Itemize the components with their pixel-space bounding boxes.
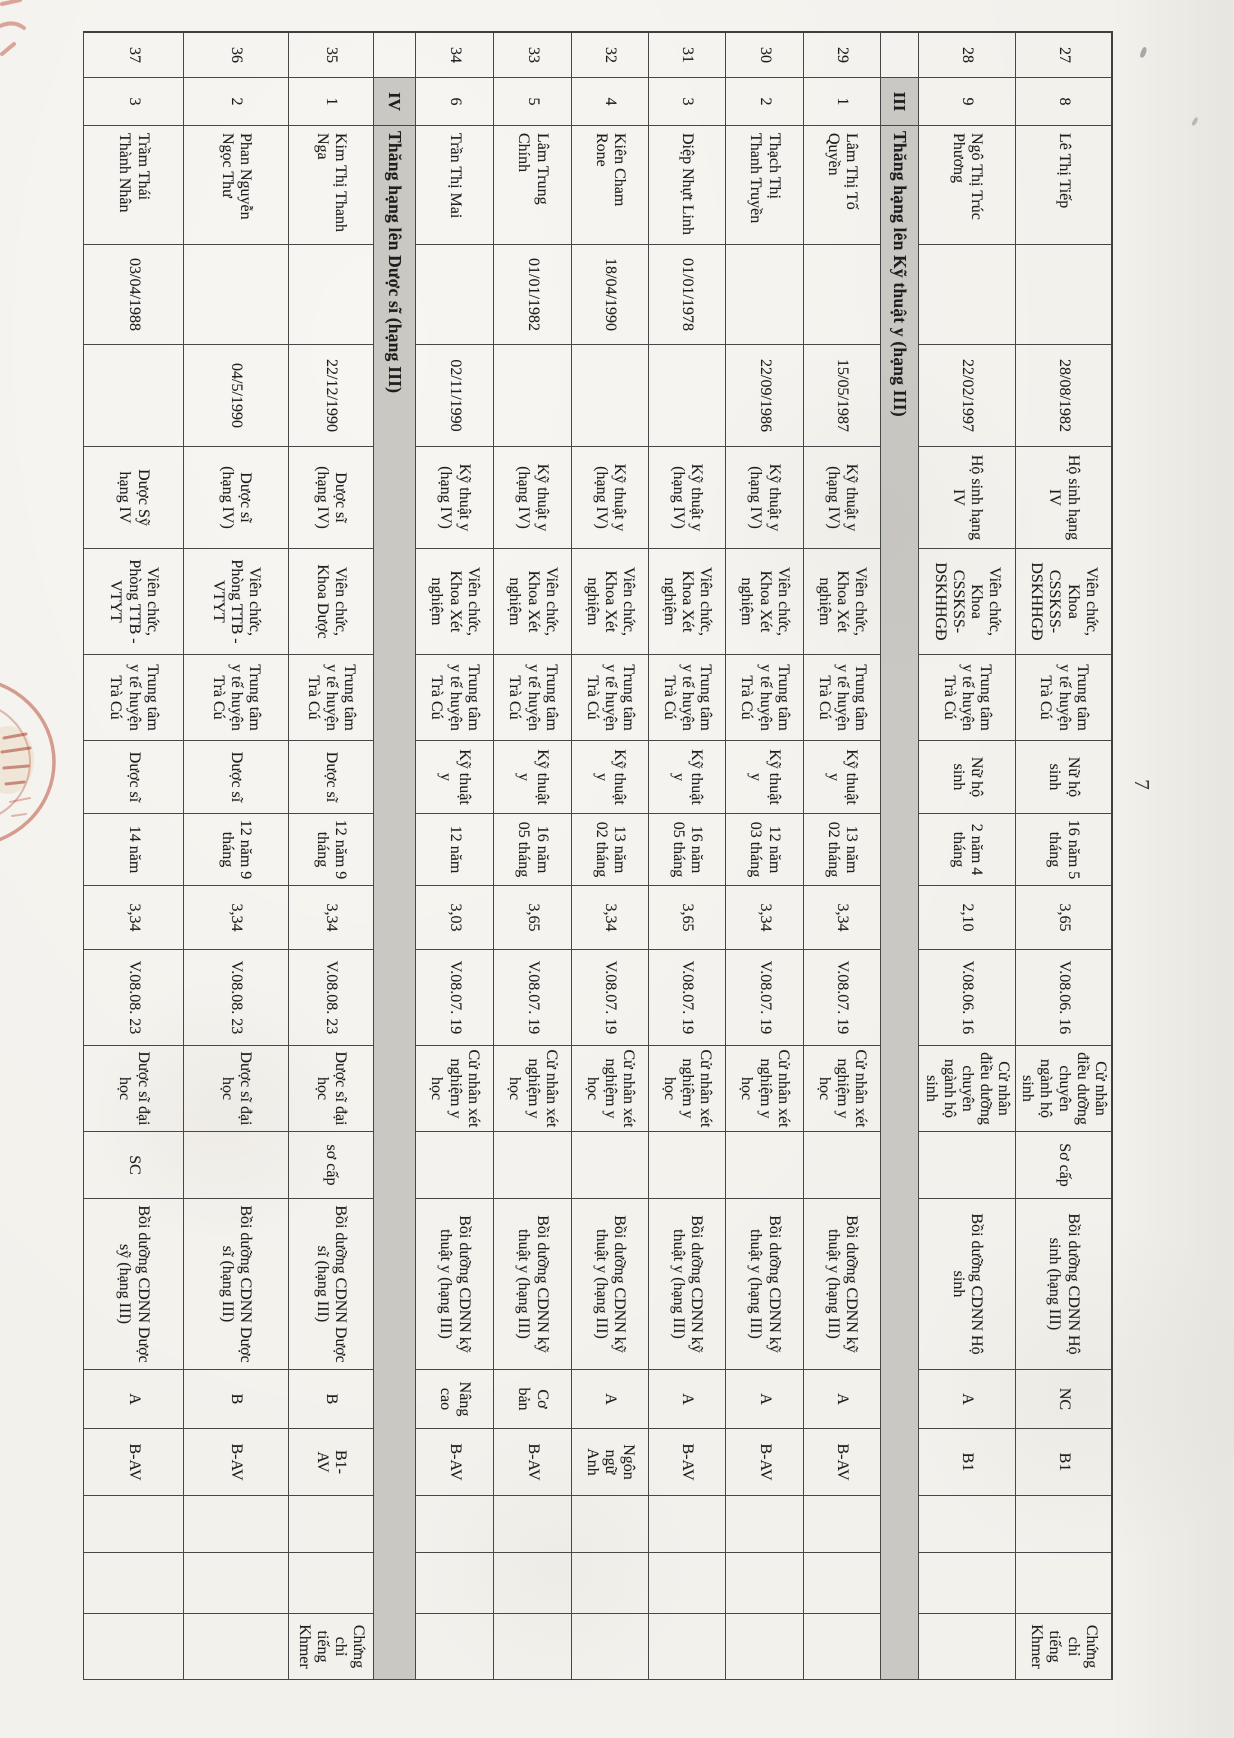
cell-thoi_gian: 12 năm 9 tháng	[288, 814, 373, 886]
cell-tin_hoc: NC	[1015, 1370, 1111, 1429]
cell-ho_ten: Trầm Thái Thành Nhân	[83, 126, 183, 245]
cell-don_vi: Trung tâm y tế huyện Trà Cú	[415, 655, 493, 741]
record-row-36: 362Phan Nguyễn Ngọc Thư04/5/1990Dược sĩ …	[183, 33, 288, 1680]
cell-ho_ten: Lê Thị Tiếp	[1015, 126, 1111, 245]
cell-ngoai_ngu: B-AV	[648, 1429, 725, 1496]
cell-so_tt: 3	[83, 78, 183, 126]
cell-tin_hoc: A	[725, 1370, 803, 1429]
cell-trinh_do_khac	[803, 1132, 880, 1199]
cell-cot_18	[725, 1496, 803, 1553]
cell-cot_18	[493, 1496, 571, 1553]
cell-don_vi: Trung tâm y tế huyện Trà Cú	[803, 655, 880, 741]
cell-cot_18	[571, 1496, 648, 1553]
record-row-35: 351Kim Thị Thanh Nga22/12/1990Dược sĩ (h…	[288, 33, 373, 1680]
record-row-37: 373Trầm Thái Thành Nhân03/04/1988Dược Sỹ…	[83, 33, 183, 1680]
cell-boi_duong_cdnn: Bồi dưỡng CDNN kỹ thuật y (hạng III)	[571, 1199, 648, 1370]
cell-cot_19	[415, 1553, 493, 1614]
cell-cot_18	[918, 1496, 1015, 1553]
scanned-document-sheet: 278Lê Thị Tiếp28/08/1982Hộ sinh hạng IVV…	[0, 0, 1234, 1738]
cell-ngay_sinh_nam	[183, 245, 288, 345]
cell-vi_tri_viec_lam: Viên chức, Khoa Dược	[288, 549, 373, 655]
cell-chuc_danh_hien_giu: Hộ sinh hạng IV	[1015, 447, 1111, 549]
record-row-34: 346Trần Thị Mai02/11/1990Kỹ thuật y (hạn…	[415, 33, 493, 1680]
cell-vi_tri_viec_lam: Viên chức, Khoa Xét nghiệm	[648, 549, 725, 655]
cell-cot_19	[1015, 1553, 1111, 1614]
cell-so_tt: 3	[648, 78, 725, 126]
cell-thoi_gian: 12 năm	[415, 814, 493, 886]
cell-chuc_danh_hien_giu: Kỹ thuật y (hạng IV)	[803, 447, 880, 549]
cell-chuc_danh: Dược sĩ	[183, 741, 288, 814]
cell-ngay_sinh_nam	[803, 245, 880, 345]
cell-ma_so: V.08.06. 16	[918, 950, 1015, 1046]
cell-ngay_sinh_nu: 04/5/1990	[183, 345, 288, 447]
cell-ho_ten: Phan Nguyễn Ngọc Thư	[183, 126, 288, 245]
cell-cot_18	[83, 1496, 183, 1553]
cell-boi_duong_cdnn: Bồi dưỡng CDNN Dược sĩ (hạng III)	[183, 1199, 288, 1370]
cell-boi_duong_cdnn: Bồi dưỡng CDNN Dược sĩ (hạng III)	[288, 1199, 373, 1370]
cell-ngoai_ngu: B-AV	[725, 1429, 803, 1496]
cell-ngoai_ngu: B1- AV	[288, 1429, 373, 1496]
cell-chuc_danh_hien_giu: Kỹ thuật y (hạng IV)	[415, 447, 493, 549]
cell-thoi_gian: 16 năm 05 tháng	[493, 814, 571, 886]
cell-trinh_do_chuyen_mon: Cử nhân điều dưỡng chuyên ngành hộ sinh	[1015, 1046, 1111, 1132]
cell-don_vi: Trung tâm y tế huyện Trà Cú	[1015, 655, 1111, 741]
cell-tieng_dan_toc	[803, 1614, 880, 1680]
cell-tieng_dan_toc	[83, 1614, 183, 1680]
cell-vi_tri_viec_lam: Viên chức, Khoa CSSKSS-DSKHHGĐ	[918, 549, 1015, 655]
cell-cot_19	[648, 1553, 725, 1614]
cell-don_vi: Trung tâm y tế huyện Trà Cú	[571, 655, 648, 741]
cell-trinh_do_khac: sơ cấp	[288, 1132, 373, 1199]
cell-ngoai_ngu: B-AV	[803, 1429, 880, 1496]
cell-ngay_sinh_nu: 15/05/1987	[803, 345, 880, 447]
cell-ma_so: V.08.07. 19	[571, 950, 648, 1046]
cell-ho_ten: Lâm Thị Tố Quyền	[803, 126, 880, 245]
cell-cot_19	[725, 1553, 803, 1614]
section-blank-cell	[373, 33, 415, 78]
cell-trinh_do_chuyen_mon: Cử nhân điều dưỡng chuyên ngành hộ sinh	[918, 1046, 1015, 1132]
cell-ngoai_ngu: B-AV	[415, 1429, 493, 1496]
cell-vi_tri_viec_lam: Viên chức, Khoa Xét nghiệm	[493, 549, 571, 655]
cell-don_vi: Trung tâm y tế huyện Trà Cú	[493, 655, 571, 741]
cell-thoi_gian: 16 năm 05 tháng	[648, 814, 725, 886]
cell-boi_duong_cdnn: Bồi dưỡng CDNN Hộ sinh	[918, 1199, 1015, 1370]
cell-ngay_sinh_nu	[648, 345, 725, 447]
cell-chuc_danh: Dược sĩ	[83, 741, 183, 814]
section-title: Thăng hạng lên Dược sĩ (hạng III)	[373, 126, 415, 1680]
cell-boi_duong_cdnn: Bồi dưỡng CDNN kỹ thuật y (hạng III)	[415, 1199, 493, 1370]
cell-thoi_gian: 16 năm 5 tháng	[1015, 814, 1111, 886]
cell-chuc_danh_hien_giu: Dược Sỹ hạng IV	[83, 447, 183, 549]
cell-tieng_dan_toc	[493, 1614, 571, 1680]
cell-tieng_dan_toc: Chứng chỉ tiếng Khmer	[1015, 1614, 1111, 1680]
cell-thoi_gian: 14 năm	[83, 814, 183, 886]
cell-ngoai_ngu: B-AV	[493, 1429, 571, 1496]
cell-he_so_luong: 3,34	[571, 886, 648, 950]
cell-chuc_danh: Kỹ thuật y	[803, 741, 880, 814]
cell-so_tt: 1	[803, 78, 880, 126]
cell-chuc_danh_hien_giu: Kỹ thuật y (hạng IV)	[493, 447, 571, 549]
cell-ngay_sinh_nam	[725, 245, 803, 345]
cell-tin_hoc: Nâng cao	[415, 1370, 493, 1429]
cell-trinh_do_khac	[415, 1132, 493, 1199]
cell-tin_hoc: A	[918, 1370, 1015, 1429]
cell-so_tt: 8	[1015, 78, 1111, 126]
cell-tin_hoc: B	[288, 1370, 373, 1429]
cell-so_tt: 1	[288, 78, 373, 126]
section-blank-cell	[880, 33, 918, 78]
cell-chuc_danh_hien_giu: Kỹ thuật y (hạng IV)	[648, 447, 725, 549]
cell-cot_19	[571, 1553, 648, 1614]
record-row-28: 289Ngô Thị Trúc Phương22/02/1997Hộ sinh …	[918, 33, 1015, 1680]
cell-ngay_sinh_nu: 28/08/1982	[1015, 345, 1111, 447]
cell-ngay_sinh_nam: 03/04/1988	[83, 245, 183, 345]
cell-don_vi: Trung tâm y tế huyện Trà Cú	[83, 655, 183, 741]
cell-vi_tri_viec_lam: Viên chức, Phòng TTB - VTYT	[83, 549, 183, 655]
section-numeral: III	[880, 78, 918, 126]
cell-tin_hoc: A	[571, 1370, 648, 1429]
cell-trinh_do_khac: Sơ cấp	[1015, 1132, 1111, 1199]
cell-chuc_danh_hien_giu: Kỹ thuật y (hạng IV)	[725, 447, 803, 549]
cell-so_tt: 6	[415, 78, 493, 126]
cell-ma_so: V.08.07. 19	[725, 950, 803, 1046]
cell-thoi_gian: 12 năm 03 tháng	[725, 814, 803, 886]
cell-ngoai_ngu: B1	[918, 1429, 1015, 1496]
cell-ngay_sinh_nam	[415, 245, 493, 345]
cell-ngay_sinh_nam	[1015, 245, 1111, 345]
cell-so_tt: 5	[493, 78, 571, 126]
cell-ngoai_ngu: B-AV	[83, 1429, 183, 1496]
cell-tin_hoc: A	[83, 1370, 183, 1429]
cell-so_tt: 9	[918, 78, 1015, 126]
cell-tieng_dan_toc	[648, 1614, 725, 1680]
cell-trinh_do_chuyen_mon: Cử nhân xét nghiệm y học	[803, 1046, 880, 1132]
cell-ma_so: V.08.08. 23	[183, 950, 288, 1046]
cell-chuc_danh: Nữ hộ sinh	[1015, 741, 1111, 814]
cell-cot_18	[648, 1496, 725, 1553]
cell-tin_hoc: A	[648, 1370, 725, 1429]
cell-trinh_do_chuyen_mon: Cử nhân xét nghiệm y học	[725, 1046, 803, 1132]
cell-ho_ten: Ngô Thị Trúc Phương	[918, 126, 1015, 245]
cell-trinh_do_chuyen_mon: Dược sĩ đại học	[83, 1046, 183, 1132]
cell-chuc_danh: Kỹ thuật y	[725, 741, 803, 814]
section-numeral: IV	[373, 78, 415, 126]
cell-he_so_luong: 3,65	[648, 886, 725, 950]
cell-ngay_sinh_nu: 22/09/1986	[725, 345, 803, 447]
section-title: Thăng hạng lên Kỹ thuật y (hạng III)	[880, 126, 918, 1680]
cell-ma_so: V.08.08. 23	[83, 950, 183, 1046]
cell-stt: 28	[918, 33, 1015, 78]
record-row-29: 291Lâm Thị Tố Quyền15/05/1987Kỹ thuật y …	[803, 33, 880, 1680]
cell-chuc_danh: Dược sĩ	[288, 741, 373, 814]
cell-chuc_danh_hien_giu: Kỹ thuật y (hạng IV)	[571, 447, 648, 549]
personnel-table: 278Lê Thị Tiếp28/08/1982Hộ sinh hạng IVV…	[83, 31, 1113, 1680]
cell-ngay_sinh_nu: 22/02/1997	[918, 345, 1015, 447]
cell-trinh_do_khac: SC	[83, 1132, 183, 1199]
cell-stt: 31	[648, 33, 725, 78]
cell-chuc_danh_hien_giu: Dược sĩ (hạng IV)	[288, 447, 373, 549]
cell-trinh_do_chuyen_mon: Cử nhân xét nghiệm y học	[648, 1046, 725, 1132]
cell-boi_duong_cdnn: Bồi dưỡng CDNN kỹ thuật y (hạng III)	[803, 1199, 880, 1370]
cell-boi_duong_cdnn: Bồi dưỡng CDNN kỹ thuật y (hạng III)	[648, 1199, 725, 1370]
cell-stt: 33	[493, 33, 571, 78]
cell-trinh_do_khac	[918, 1132, 1015, 1199]
cell-boi_duong_cdnn: Bồi dưỡng CDNN Dược sỹ (hạng III)	[83, 1199, 183, 1370]
seal-fragment	[0, 680, 64, 845]
cell-tin_hoc: B	[183, 1370, 288, 1429]
cell-don_vi: Trung tâm y tế huyện Trà Cú	[648, 655, 725, 741]
cell-trinh_do_khac	[725, 1132, 803, 1199]
cell-tieng_dan_toc	[571, 1614, 648, 1680]
cell-he_so_luong: 3,34	[803, 886, 880, 950]
record-row-27: 278Lê Thị Tiếp28/08/1982Hộ sinh hạng IVV…	[1015, 33, 1111, 1680]
cell-stt: 34	[415, 33, 493, 78]
cell-he_so_luong: 3,03	[415, 886, 493, 950]
record-row-33: 335Lâm Trung Chính01/01/1982Kỹ thuật y (…	[493, 33, 571, 1680]
cell-trinh_do_chuyen_mon: Dược sĩ đại học	[288, 1046, 373, 1132]
cell-cot_18	[1015, 1496, 1111, 1553]
cell-stt: 32	[571, 33, 648, 78]
cell-thoi_gian: 2 năm 4 tháng	[918, 814, 1015, 886]
cell-tin_hoc: Cơ bản	[493, 1370, 571, 1429]
cell-chuc_danh: Kỹ thuật y	[415, 741, 493, 814]
cell-cot_18	[288, 1496, 373, 1553]
cell-he_so_luong: 3,34	[725, 886, 803, 950]
cell-ma_so: V.08.08. 23	[288, 950, 373, 1046]
record-row-32: 324Kiên Cham Rone18/04/1990Kỹ thuật y (h…	[571, 33, 648, 1680]
cell-cot_19	[183, 1553, 288, 1614]
cell-ngay_sinh_nam	[288, 245, 373, 345]
scan-speck	[1191, 117, 1199, 127]
cell-ngay_sinh_nam: 01/01/1982	[493, 245, 571, 345]
cell-ho_ten: Kiên Cham Rone	[571, 126, 648, 245]
cell-stt: 35	[288, 33, 373, 78]
cell-chuc_danh: Nữ hộ sinh	[918, 741, 1015, 814]
cell-stt: 27	[1015, 33, 1111, 78]
cell-trinh_do_khac	[648, 1132, 725, 1199]
cell-stt: 36	[183, 33, 288, 78]
cell-boi_duong_cdnn: Bồi dưỡng CDNN Hộ sinh (hạng III)	[1015, 1199, 1111, 1370]
cell-cot_19	[288, 1553, 373, 1614]
cell-chuc_danh: Kỹ thuật y	[571, 741, 648, 814]
record-row-31: 313Diệp Nhựt Linh01/01/1978Kỹ thuật y (h…	[648, 33, 725, 1680]
cell-vi_tri_viec_lam: Viên chức, Phòng TTB - VTYT	[183, 549, 288, 655]
cell-chuc_danh: Kỹ thuật y	[493, 741, 571, 814]
cell-ngay_sinh_nam: 18/04/1990	[571, 245, 648, 345]
cell-ngay_sinh_nu	[83, 345, 183, 447]
cell-ma_so: V.08.07. 19	[415, 950, 493, 1046]
cell-ngay_sinh_nu	[571, 345, 648, 447]
cell-chuc_danh_hien_giu: Dược sĩ (hạng IV)	[183, 447, 288, 549]
red-corner-mark	[0, 0, 44, 72]
cell-tieng_dan_toc	[415, 1614, 493, 1680]
cell-ma_so: V.08.06. 16	[1015, 950, 1111, 1046]
cell-ngoai_ngu: Ngôn ngữ Anh	[571, 1429, 648, 1496]
cell-he_so_luong: 2,10	[918, 886, 1015, 950]
cell-don_vi: Trung tâm y tế huyện Trà Cú	[288, 655, 373, 741]
cell-vi_tri_viec_lam: Viên chức, Khoa Xét nghiệm	[571, 549, 648, 655]
cell-thoi_gian: 12 năm 9 tháng	[183, 814, 288, 886]
cell-ngay_sinh_nu: 02/11/1990	[415, 345, 493, 447]
cell-trinh_do_chuyen_mon: Cử nhân xét nghiệm y học	[415, 1046, 493, 1132]
cell-vi_tri_viec_lam: Viên chức, Khoa Xét nghiệm	[803, 549, 880, 655]
page-number: 7	[1129, 779, 1154, 790]
record-row-30: 302Thạch Thị Thanh Truyền22/09/1986Kỹ th…	[725, 33, 803, 1680]
cell-chuc_danh: Kỹ thuật y	[648, 741, 725, 814]
cell-tieng_dan_toc	[918, 1614, 1015, 1680]
cell-boi_duong_cdnn: Bồi dưỡng CDNN kỹ thuật y (hạng III)	[725, 1199, 803, 1370]
cell-ho_ten: Kim Thị Thanh Nga	[288, 126, 373, 245]
cell-cot_18	[803, 1496, 880, 1553]
cell-ma_so: V.08.07. 19	[493, 950, 571, 1046]
cell-ho_ten: Trần Thị Mai	[415, 126, 493, 245]
cell-tieng_dan_toc	[725, 1614, 803, 1680]
cell-trinh_do_chuyen_mon: Cử nhân xét nghiệm y học	[571, 1046, 648, 1132]
cell-ngoai_ngu: B1	[1015, 1429, 1111, 1496]
section-row-III: IIIThăng hạng lên Kỹ thuật y (hạng III)	[880, 33, 918, 1680]
cell-stt: 37	[83, 33, 183, 78]
section-row-IV: IVThăng hạng lên Dược sĩ (hạng III)	[373, 33, 415, 1680]
cell-ho_ten: Lâm Trung Chính	[493, 126, 571, 245]
cell-cot_18	[183, 1496, 288, 1553]
cell-trinh_do_khac	[493, 1132, 571, 1199]
cell-ngay_sinh_nam	[918, 245, 1015, 345]
cell-ma_so: V.08.07. 19	[648, 950, 725, 1046]
cell-trinh_do_chuyen_mon: Cử nhân xét nghiệm y học	[493, 1046, 571, 1132]
cell-vi_tri_viec_lam: Viên chức, Khoa CSSKSS-DSKHHGĐ	[1015, 549, 1111, 655]
cell-ngay_sinh_nu	[493, 345, 571, 447]
cell-so_tt: 4	[571, 78, 648, 126]
cell-vi_tri_viec_lam: Viên chức, Khoa Xét nghiệm	[415, 549, 493, 655]
cell-cot_18	[415, 1496, 493, 1553]
cell-tin_hoc: A	[803, 1370, 880, 1429]
cell-thoi_gian: 13 năm 02 tháng	[803, 814, 880, 886]
cell-don_vi: Trung tâm y tế huyện Trà Cú	[918, 655, 1015, 741]
cell-so_tt: 2	[725, 78, 803, 126]
cell-so_tt: 2	[183, 78, 288, 126]
cell-ho_ten: Thạch Thị Thanh Truyền	[725, 126, 803, 245]
cell-tieng_dan_toc: Chứng chỉ tiếng Khmer	[288, 1614, 373, 1680]
cell-ho_ten: Diệp Nhựt Linh	[648, 126, 725, 245]
cell-chuc_danh_hien_giu: Hộ sinh hạng IV	[918, 447, 1015, 549]
cell-trinh_do_khac	[571, 1132, 648, 1199]
cell-trinh_do_khac	[183, 1132, 288, 1199]
cell-ngay_sinh_nu: 22/12/1990	[288, 345, 373, 447]
cell-he_so_luong: 3,34	[288, 886, 373, 950]
cell-thoi_gian: 13 năm 02 tháng	[571, 814, 648, 886]
cell-don_vi: Trung tâm y tế huyện Trà Cú	[725, 655, 803, 741]
cell-stt: 30	[725, 33, 803, 78]
cell-ma_so: V.08.07. 19	[803, 950, 880, 1046]
cell-he_so_luong: 3,65	[1015, 886, 1111, 950]
cell-cot_19	[83, 1553, 183, 1614]
cell-ngoai_ngu: B-AV	[183, 1429, 288, 1496]
cell-cot_19	[918, 1553, 1015, 1614]
cell-tieng_dan_toc	[183, 1614, 288, 1680]
cell-he_so_luong: 3,65	[493, 886, 571, 950]
cell-boi_duong_cdnn: Bồi dưỡng CDNN kỹ thuật y (hạng III)	[493, 1199, 571, 1370]
cell-stt: 29	[803, 33, 880, 78]
scan-speck	[1139, 46, 1148, 58]
cell-cot_19	[493, 1553, 571, 1614]
cell-vi_tri_viec_lam: Viên chức, Khoa Xét nghiệm	[725, 549, 803, 655]
cell-ngay_sinh_nam: 01/01/1978	[648, 245, 725, 345]
cell-trinh_do_chuyen_mon: Dược sĩ đại học	[183, 1046, 288, 1132]
cell-he_so_luong: 3,34	[183, 886, 288, 950]
cell-cot_19	[803, 1553, 880, 1614]
cell-he_so_luong: 3,34	[83, 886, 183, 950]
cell-don_vi: Trung tâm y tế huyện Trà Cú	[183, 655, 288, 741]
